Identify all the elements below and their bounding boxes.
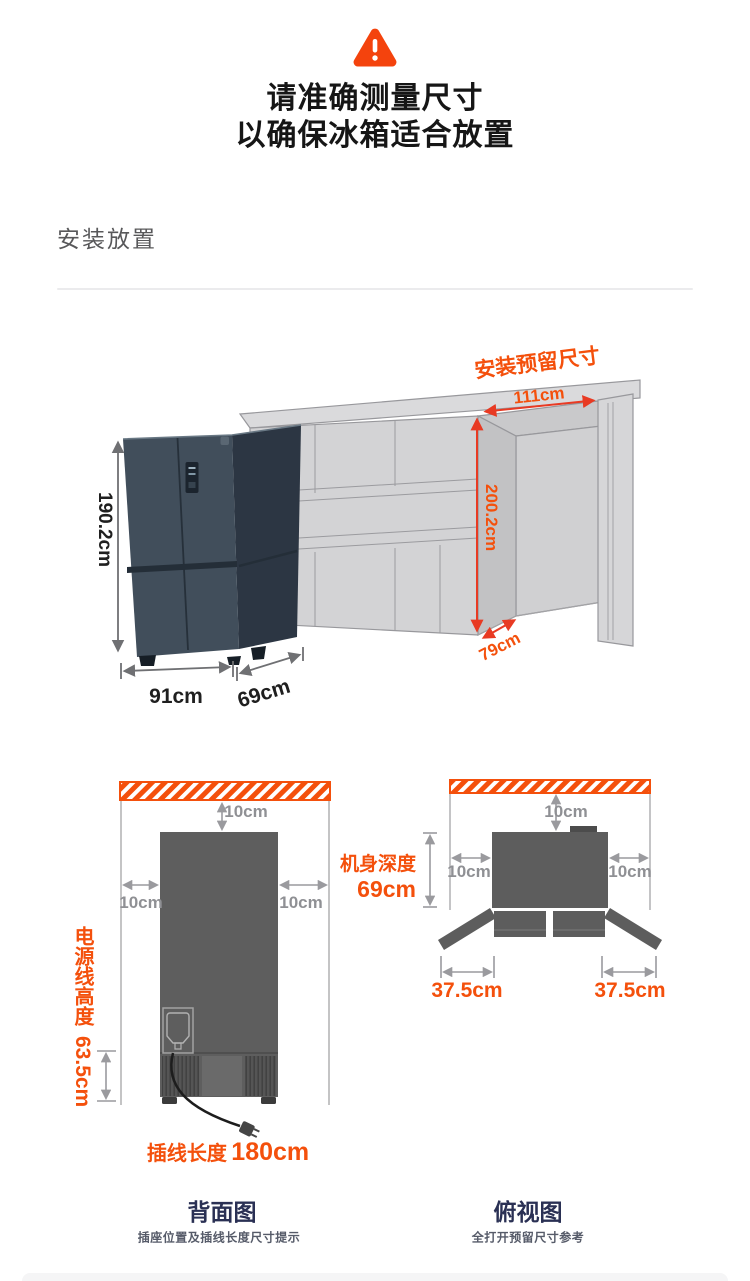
wall-hatch-bar — [120, 782, 330, 800]
back-view-caption: 背面图 — [188, 1193, 257, 1227]
body-depth-text: 机身深度 — [316, 854, 416, 876]
back-clearance-top-label: 10cm — [224, 802, 267, 822]
section-title: 安装放置 — [57, 220, 157, 254]
power-cord-height-text: 电源线高度 — [71, 926, 93, 1026]
wall-hatch-bar — [450, 780, 650, 793]
top-clearance-right-label: 10cm — [608, 862, 651, 882]
fridge-width-label: 91cm — [149, 685, 203, 709]
body-depth-value: 69cm — [316, 876, 416, 902]
back-view-caption-sub: 插座位置及插线长度尺寸提示 — [138, 1229, 301, 1246]
page-title-line2: 以确保冰箱适合放置 — [0, 110, 750, 154]
fridge-height-label: 190.2cm — [93, 492, 115, 567]
top-view-caption: 俯视图 — [494, 1193, 563, 1227]
fridge-illustration — [123, 425, 301, 666]
door-clearance-right-label: 37.5cm — [594, 979, 665, 1003]
plug-length-value: 180cm — [231, 1138, 309, 1166]
top-view-diagram — [375, 760, 750, 1180]
top-clearance-left-label: 10cm — [447, 862, 490, 882]
back-view-diagram — [0, 760, 375, 1180]
power-cord-height-label: 电源线高度63.5cm — [68, 926, 97, 1107]
plug-length-label: 插线长度 180cm — [147, 1137, 309, 1167]
fridge-display-panel — [186, 462, 199, 493]
plug-length-text: 插线长度 — [147, 1143, 227, 1165]
open-door-left — [438, 908, 496, 950]
fridge-back-shape — [160, 832, 278, 1104]
fridge-top-shape — [438, 826, 662, 950]
brand-logo-icon — [221, 437, 230, 446]
niche-height-label: 200.2cm — [481, 484, 501, 551]
open-door-right — [604, 908, 662, 950]
wall-illustration — [240, 380, 640, 646]
top-clearance-top-label: 10cm — [544, 802, 587, 822]
power-cord-height-value: 63.5cm — [71, 1036, 94, 1107]
next-card-edge — [22, 1273, 728, 1281]
door-clearance-left-label: 37.5cm — [431, 979, 502, 1003]
section-divider — [57, 288, 693, 290]
body-depth-label: 机身深度 69cm — [316, 854, 416, 902]
back-clearance-left-label: 10cm — [119, 893, 162, 913]
top-view-caption-sub: 全打开预留尺寸参考 — [472, 1229, 585, 1246]
installation-guide-page: 请准确测量尺寸 以确保冰箱适合放置 安装放置 — [0, 0, 750, 1281]
